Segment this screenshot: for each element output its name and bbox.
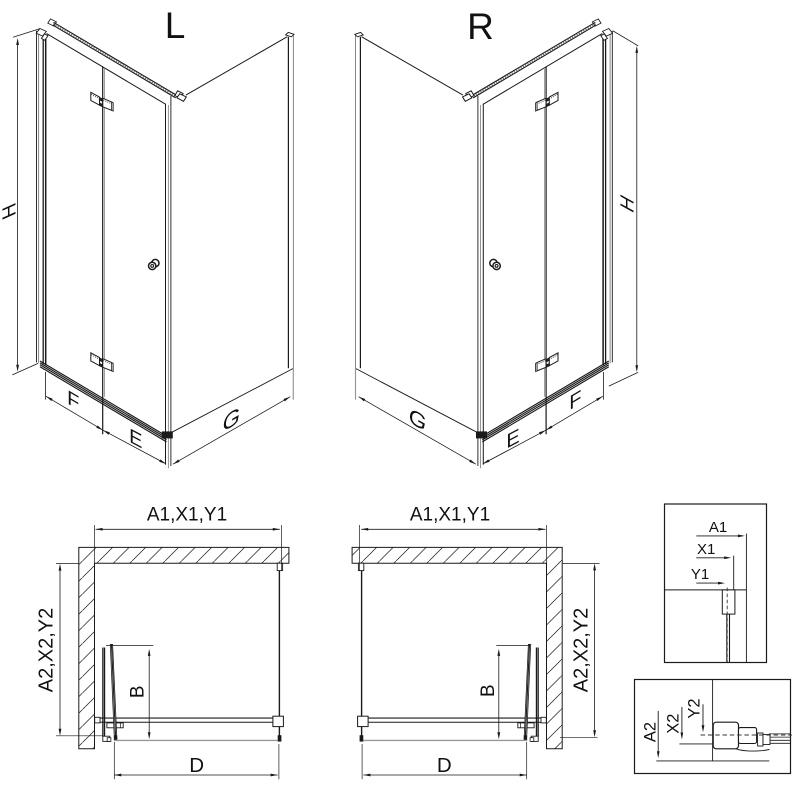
- svg-text:Y1: Y1: [691, 566, 709, 583]
- svg-text:Y2: Y2: [686, 698, 704, 718]
- svg-text:A1,X1,Y1: A1,X1,Y1: [410, 505, 490, 526]
- svg-text:B: B: [128, 685, 149, 698]
- svg-text:A1: A1: [709, 519, 727, 536]
- svg-text:B: B: [478, 684, 499, 697]
- svg-text:X2: X2: [665, 714, 683, 734]
- svg-text:A2: A2: [642, 722, 660, 742]
- svg-text:A1,X1,Y1: A1,X1,Y1: [147, 505, 227, 526]
- svg-text:D: D: [189, 754, 204, 777]
- svg-text:X1: X1: [697, 541, 715, 558]
- svg-text:D: D: [437, 754, 452, 777]
- svg-text:R: R: [467, 6, 494, 47]
- svg-text:A2,X2,Y2: A2,X2,Y2: [571, 608, 593, 693]
- svg-text:L: L: [165, 5, 186, 46]
- svg-text:A2,X2,Y2: A2,X2,Y2: [35, 608, 57, 693]
